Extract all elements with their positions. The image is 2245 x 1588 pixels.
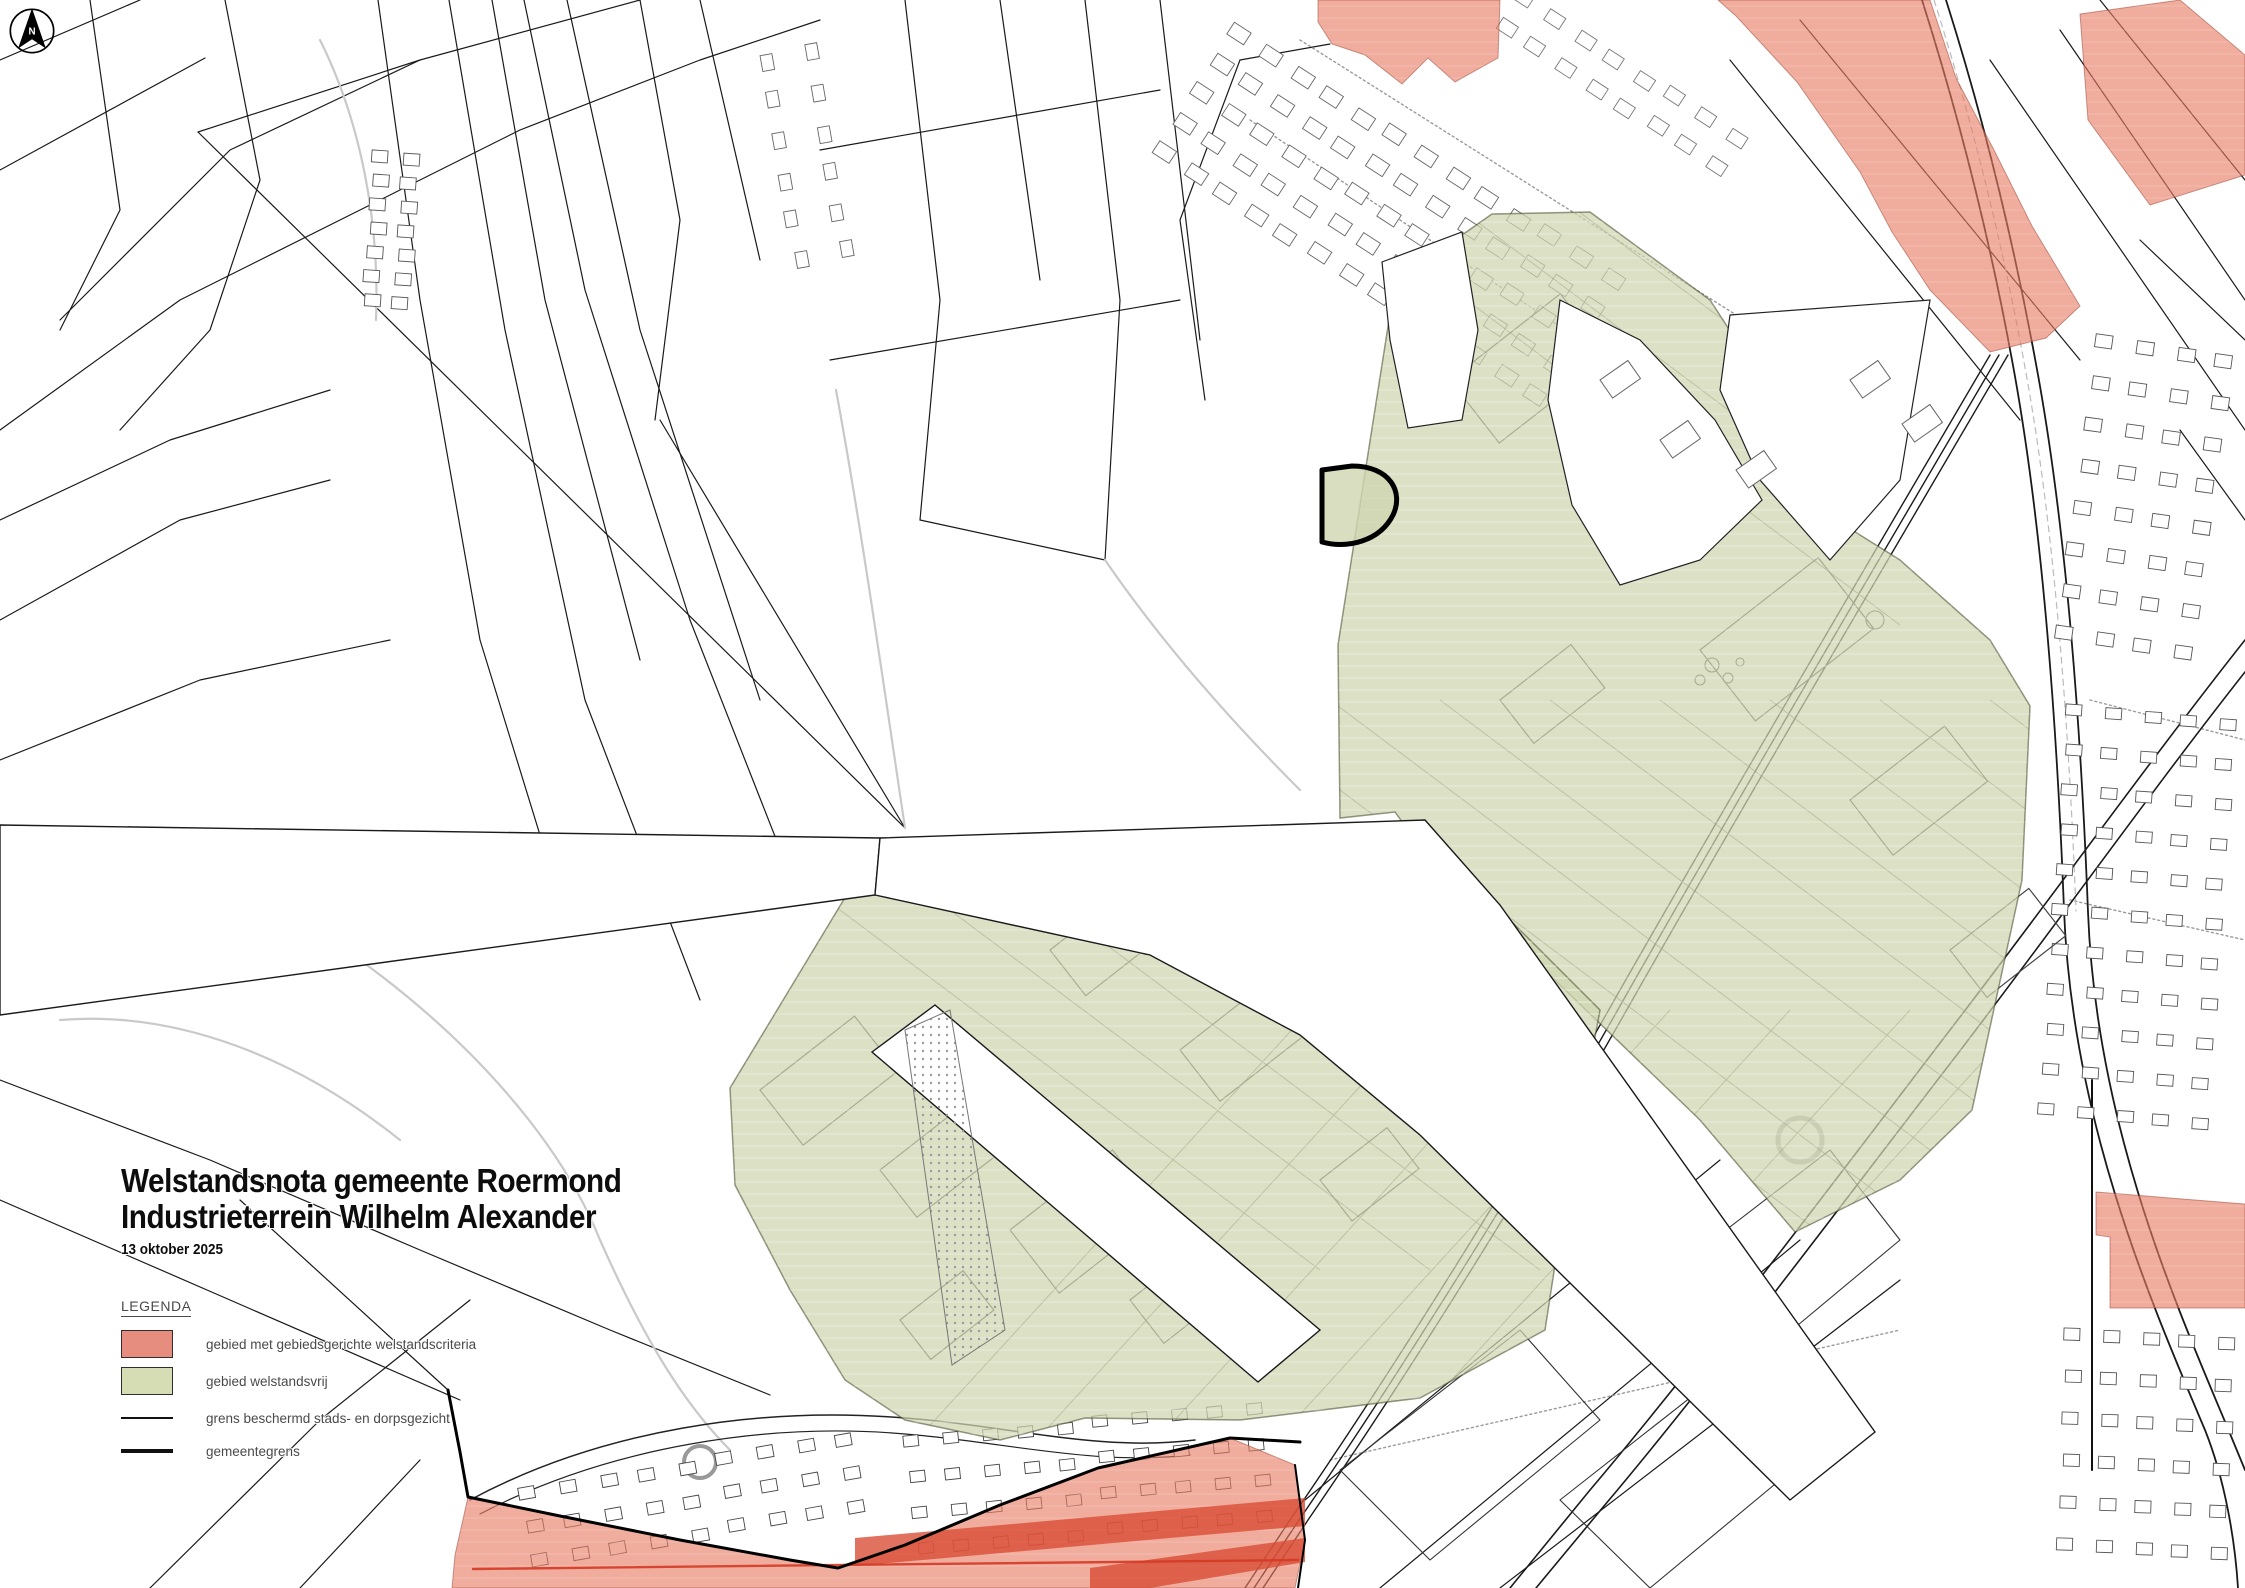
thick-line-swatch [121, 1449, 173, 1454]
legend-heading: LEGENDA [121, 1298, 191, 1317]
legend-item-green-area: gebied welstandsvrij [121, 1367, 641, 1395]
north-compass-icon: N [0, 0, 64, 64]
legend-label: gebied welstandsvrij [206, 1374, 328, 1389]
legend-label: gemeentegrens [206, 1444, 300, 1459]
red-area-swatch [121, 1330, 173, 1358]
legend-item-municipal-boundary: gemeentegrens [121, 1441, 641, 1461]
legend-item-red-area: gebied met gebiedsgerichte welstandscrit… [121, 1330, 641, 1358]
legend-item-protected-boundary: grens beschermd stads- en dorpsgezicht [121, 1408, 641, 1428]
green-area-swatch [121, 1367, 173, 1395]
map-page: Welstandsnota gemeente Roermond Industri… [0, 0, 2245, 1588]
thin-line-swatch [121, 1417, 173, 1419]
legend-label: grens beschermd stads- en dorpsgezicht [206, 1411, 450, 1426]
legend-label: gebied met gebiedsgerichte welstandscrit… [206, 1337, 476, 1352]
legend: LEGENDA gebied met gebiedsgerichte welst… [121, 1298, 641, 1461]
svg-text:N: N [28, 27, 35, 38]
